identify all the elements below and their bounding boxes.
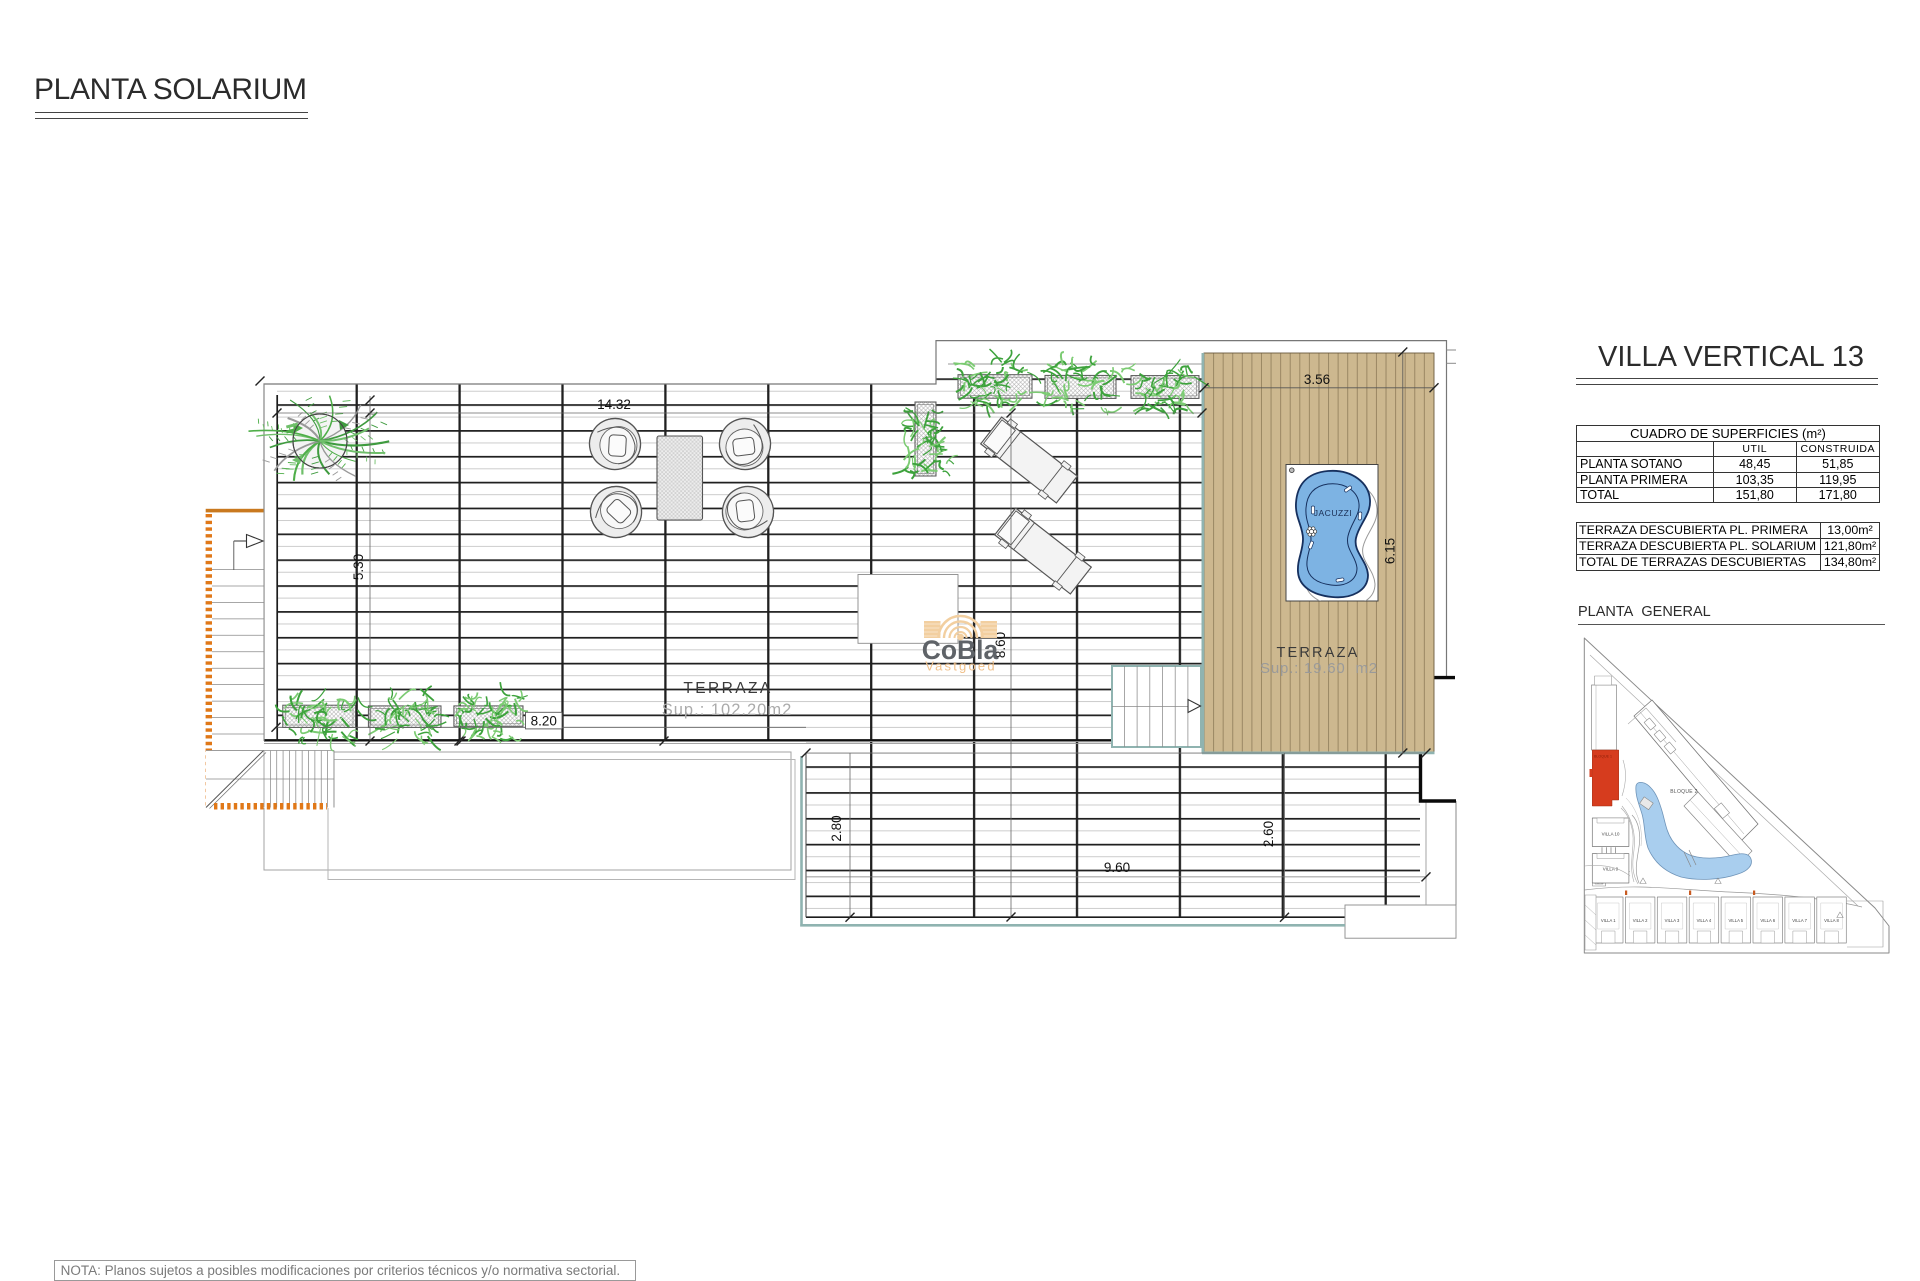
svg-text:Sup.: 19.60 m2: Sup.: 19.60 m2 — [1260, 660, 1378, 677]
svg-text:VILLA 3: VILLA 3 — [1665, 918, 1680, 923]
svg-text:2.80: 2.80 — [829, 815, 844, 841]
svg-text:8.20: 8.20 — [531, 714, 557, 729]
svg-text:VILLA 2: VILLA 2 — [1633, 918, 1648, 923]
svg-text:BLOQUE 1: BLOQUE 1 — [1594, 755, 1612, 759]
svg-text:VILLA 6: VILLA 6 — [1760, 918, 1775, 923]
svg-text:VILLA 4: VILLA 4 — [1697, 918, 1712, 923]
svg-text:14.32: 14.32 — [597, 397, 631, 412]
svg-text:VILLA 5: VILLA 5 — [1728, 918, 1743, 923]
svg-text:9.60: 9.60 — [1104, 860, 1130, 875]
svg-text:Sup.: 102.20m2: Sup.: 102.20m2 — [662, 701, 793, 719]
svg-text:3.56: 3.56 — [1304, 372, 1330, 387]
svg-text:VILLA 7: VILLA 7 — [1792, 918, 1807, 923]
svg-text:VILLA 1: VILLA 1 — [1601, 918, 1616, 923]
svg-text:VILLA 8: VILLA 8 — [1824, 918, 1839, 923]
svg-text:BLOQUE 2: BLOQUE 2 — [1670, 789, 1697, 795]
svg-text:6.15: 6.15 — [1383, 538, 1398, 564]
svg-text:5.30: 5.30 — [351, 554, 366, 580]
svg-text:2.60: 2.60 — [1261, 821, 1276, 847]
svg-text:Vastgoed: Vastgoed — [925, 659, 997, 674]
svg-text:TERRAZA: TERRAZA — [1276, 645, 1359, 661]
svg-text:VILLA 10: VILLA 10 — [1602, 832, 1620, 837]
svg-text:JACUZZI: JACUZZI — [1314, 508, 1352, 518]
svg-text:TERRAZA: TERRAZA — [683, 680, 772, 697]
